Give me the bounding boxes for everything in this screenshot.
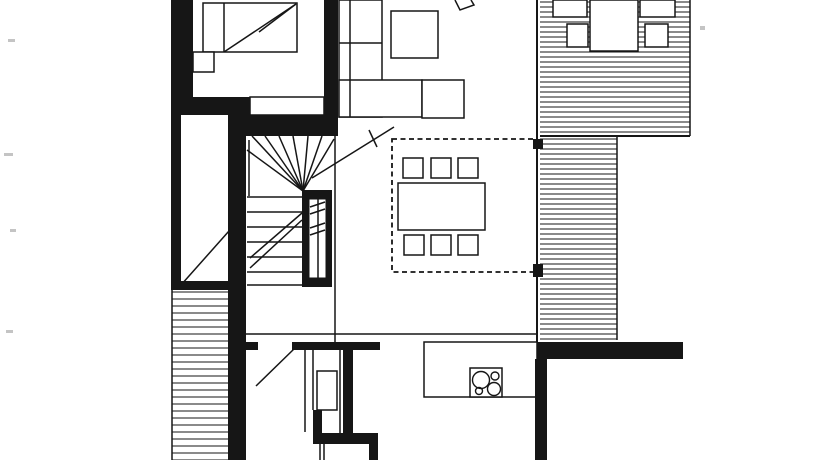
wardrobe [250,97,324,115]
scan-speck [4,153,13,156]
sofa-end-table [422,80,464,118]
coffee-table [391,11,438,58]
deck-chair [553,0,587,17]
door-swing-lower [256,348,295,386]
wall-bottom-stub [369,444,378,460]
wall-hall-nub [246,342,258,350]
dining-chair [404,235,424,255]
wall-bath-left-stub [313,410,322,433]
floor-plan [0,0,840,460]
nightstand [193,52,214,72]
sofa-seat [339,80,422,117]
wall-bath-top [292,342,380,350]
deck-chair [640,0,675,17]
deck-chair [645,24,668,47]
wall-stair-top [246,115,338,136]
dining-chair [431,158,451,178]
stair-walkline [250,213,302,258]
shaft-diagonal [181,231,229,285]
floor-plan-page [0,0,840,460]
wall-left-mid [171,115,181,287]
dining-chair [458,158,478,178]
dining-chair [403,158,423,178]
dining-chair [431,235,451,255]
scan-speck [8,39,15,42]
scan-speck [10,229,16,232]
wall-bath-right [343,350,353,437]
bath-fixture [317,371,337,410]
lounge-chair-angled [455,0,474,10]
wall-bed-bottom [193,97,250,115]
stair-fan-tread [252,136,303,191]
scan-speck [6,330,13,333]
deck-table [590,0,638,51]
dining-table [398,183,485,230]
bed [203,3,297,52]
wall-kitchen-right [535,359,547,460]
wall-outer-left-top [171,0,193,115]
wall-bath-bottom [313,433,378,444]
wall-south-right [537,342,683,359]
wall-shaft-bottom [171,281,233,290]
scan-speck [700,26,705,30]
deck-chair [567,24,588,47]
dining-chair [458,235,478,255]
